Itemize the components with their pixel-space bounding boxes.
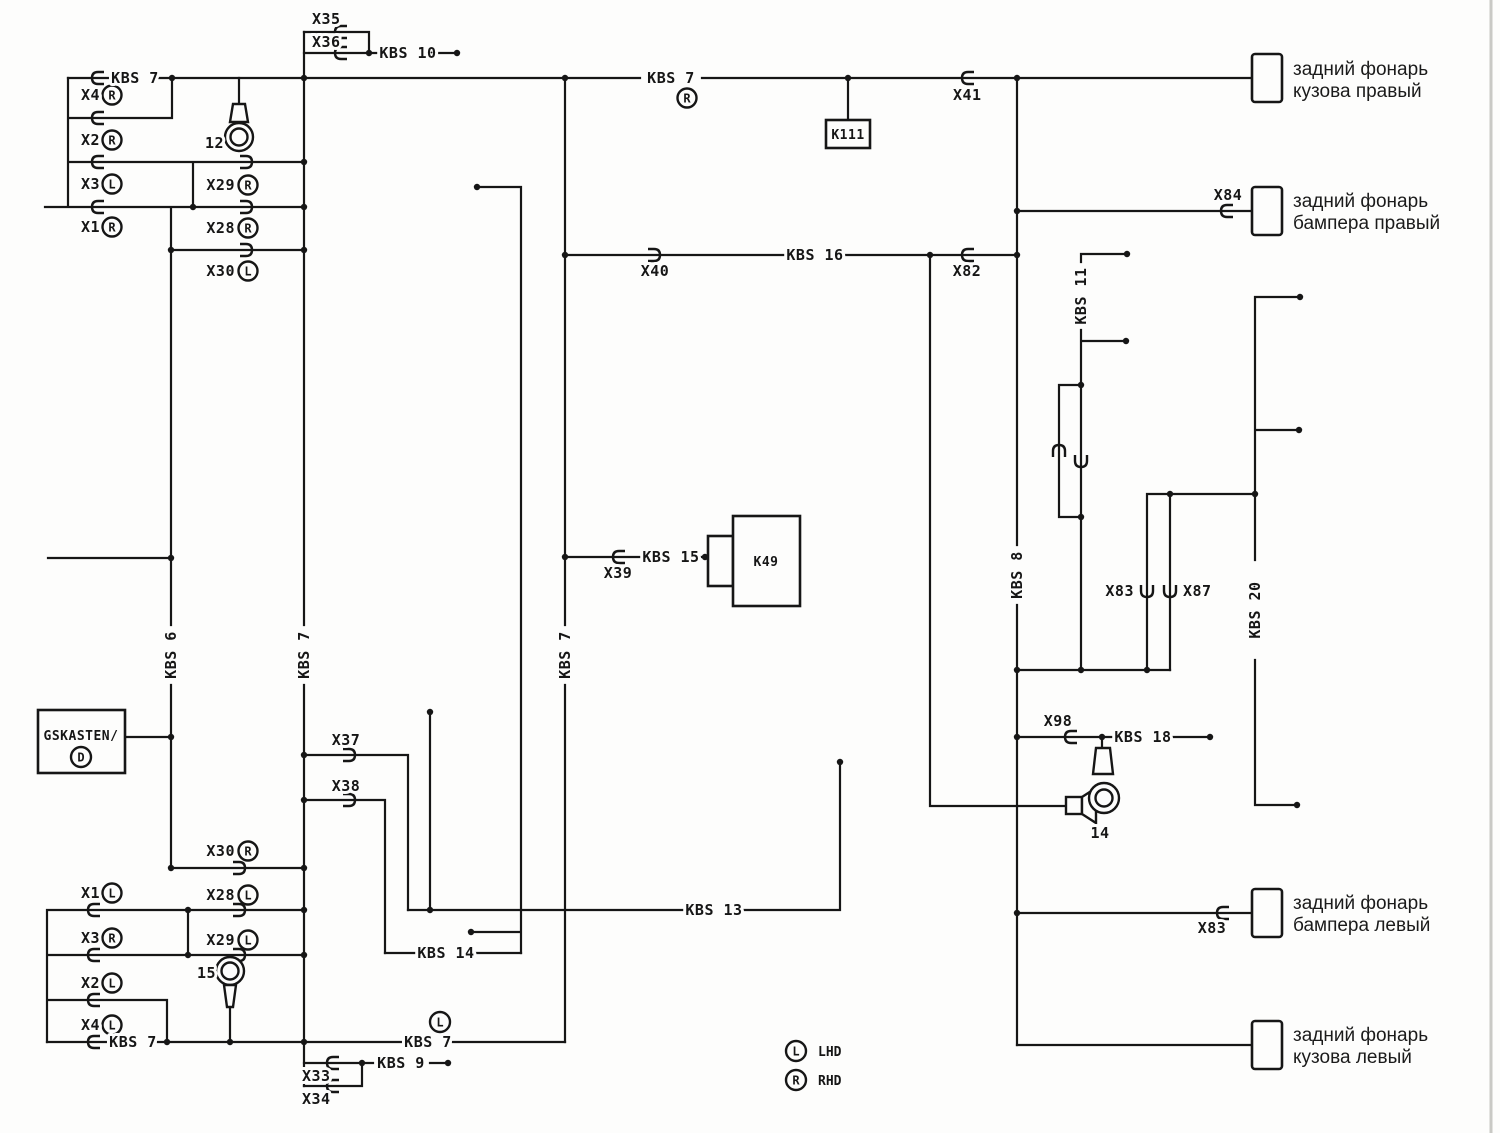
k111-label: K111: [831, 128, 864, 143]
x2-top-side-badge: R: [103, 131, 122, 150]
x30-top-label: X30: [206, 262, 235, 280]
x30-bottom-side-letter: R: [244, 845, 252, 859]
kbs7-label-top-left: KBS 7: [111, 69, 159, 87]
x34-label: X34: [302, 1090, 331, 1108]
gskasten-circuit-badge: D: [71, 747, 91, 767]
gskasten-label: GSKASTEN/: [44, 729, 119, 744]
lamp-captions: задний фонарь кузова правый задний фонар…: [1293, 59, 1440, 1068]
lamp-bumper-left-line2: бампера левый: [1293, 915, 1430, 936]
kbs7-column1-label: KBS 7: [295, 631, 313, 679]
x1-bottom-side-badge: L: [103, 884, 122, 903]
wiring-diagram-page: R R L R R R L R D R L L R L L L L KBS 7 …: [0, 0, 1500, 1133]
x1-top-side-badge: R: [103, 218, 122, 237]
kbs14-label: KBS 14: [417, 944, 474, 962]
lamp-box-bumper-left: [1252, 889, 1282, 937]
x30-top-side-letter: L: [244, 265, 251, 279]
kbs7-left-side-badge: L: [430, 1012, 450, 1032]
x28-bottom-side-badge: L: [239, 886, 258, 905]
x40-label: X40: [641, 262, 670, 280]
x1-top-label: X1: [81, 218, 100, 236]
kbs6-column-label: KBS 6: [162, 631, 180, 679]
x3-top-label: X3: [81, 175, 100, 193]
x2-bottom-side-badge: L: [103, 974, 122, 993]
x87-label: X87: [1183, 582, 1212, 600]
kbs11-column-label: KBS 11: [1072, 267, 1090, 324]
x30-bottom-side-badge: R: [239, 842, 258, 861]
x33-label: X33: [302, 1067, 331, 1085]
lamp-box-bumper-right: [1252, 187, 1282, 235]
legend: L LHD R RHD: [786, 1041, 842, 1090]
bulb-12-label: 12: [205, 134, 224, 152]
kbs13-label: KBS 13: [685, 901, 742, 919]
x2-bottom-label: X2: [81, 974, 100, 992]
lamp-box-body-left: [1252, 1021, 1282, 1069]
kbs7-column2-label: KBS 7: [556, 631, 574, 679]
kbs7-label-bottom-left: KBS 7: [109, 1033, 157, 1051]
x36-label: X36: [312, 33, 341, 51]
k49-label: K49: [754, 555, 779, 570]
kbs15-label: KBS 15: [642, 548, 699, 566]
x29-bottom-label: X29: [206, 931, 235, 949]
k49-side-box: [708, 536, 733, 586]
legend-r-letter: R: [792, 1074, 800, 1088]
x4-bottom-side-badge: L: [103, 1016, 122, 1035]
kbs7-label-top-right: KBS 7: [647, 69, 695, 87]
lamp-body-right-line1: задний фонарь: [1293, 59, 1428, 80]
kbs8-column-label: KBS 8: [1008, 551, 1026, 599]
x28-top-side-badge: R: [239, 219, 258, 238]
lamp-bumper-right-line2: бампера правый: [1293, 213, 1440, 234]
x29-top-side-letter: R: [244, 179, 252, 193]
legend-lhd-badge: L: [786, 1041, 806, 1061]
x41-label: X41: [953, 86, 982, 104]
x28-bottom-label: X28: [206, 886, 235, 904]
x30-bottom-label: X30: [206, 842, 235, 860]
x28-top-label: X28: [206, 219, 235, 237]
letter-badges: R R L R R R L R D R L L R L L L L: [71, 86, 697, 1035]
ring-14-label: 14: [1090, 824, 1109, 842]
bulb-12-icon: [225, 104, 253, 151]
x82-label: X82: [953, 262, 982, 280]
x2-top-label: X2: [81, 131, 100, 149]
x35-label: X35: [312, 10, 341, 28]
x39-label: X39: [604, 564, 633, 582]
x4-top-label: X4: [81, 86, 100, 104]
bulb-15-label: 15: [197, 964, 216, 982]
lamp-box-body-right: [1252, 54, 1282, 102]
x4-top-side-letter: R: [108, 89, 116, 103]
x28-top-side-letter: R: [244, 222, 252, 236]
x29-top-side-badge: R: [239, 176, 258, 195]
kbs18-label: KBS 18: [1114, 728, 1171, 746]
wiring-diagram-canvas: R R L R R R L R D R L L R L L L L KBS 7 …: [0, 0, 1500, 1133]
lamp-body-right-line2: кузова правый: [1293, 81, 1422, 102]
x4-bottom-side-letter: L: [108, 1019, 115, 1033]
x1-bottom-side-letter: L: [108, 887, 115, 901]
ring-terminal-14-icon: [1066, 748, 1119, 823]
bulb-15-icon: [216, 957, 244, 1007]
kbs20-column-label: KBS 20: [1246, 581, 1264, 638]
x1-bottom-label: X1: [81, 884, 100, 902]
kbs7-label-bottom-mid: KBS 7: [404, 1033, 452, 1051]
kbs10-label: KBS 10: [379, 44, 436, 62]
kbs7-left-side-letter: L: [436, 1016, 443, 1030]
lamp-body-left-line1: задний фонарь: [1293, 1025, 1428, 1046]
kbs7-right-side-letter: R: [683, 92, 691, 106]
legend-rhd-badge: R: [786, 1070, 806, 1090]
x83-inline-label: X83: [1105, 582, 1134, 600]
x83-lamp-label: X83: [1198, 919, 1227, 937]
x3-top-side-letter: L: [108, 178, 115, 192]
x29-bottom-side-letter: L: [244, 934, 251, 948]
x2-top-side-letter: R: [108, 134, 116, 148]
x1-top-side-letter: R: [108, 221, 116, 235]
x28-bottom-side-letter: L: [244, 889, 251, 903]
x37-label: X37: [332, 731, 361, 749]
x38-label: X38: [332, 777, 361, 795]
lamp-bumper-right-line1: задний фонарь: [1293, 191, 1428, 212]
kbs7-right-side-badge: R: [678, 89, 697, 108]
x3-bottom-side-letter: R: [108, 932, 116, 946]
x3-top-side-badge: L: [103, 175, 122, 194]
kbs9-label: KBS 9: [377, 1054, 425, 1072]
x29-bottom-side-badge: L: [239, 931, 258, 950]
x29-top-label: X29: [206, 176, 235, 194]
x2-bottom-side-letter: L: [108, 977, 115, 991]
legend-lhd-label: LHD: [818, 1045, 842, 1060]
lamp-body-left-line2: кузова левый: [1293, 1047, 1412, 1068]
x4-bottom-label: X4: [81, 1016, 100, 1034]
x3-bottom-label: X3: [81, 929, 100, 947]
x3-bottom-side-badge: R: [103, 929, 122, 948]
gskasten-circuit-letter: D: [77, 751, 84, 765]
x98-label: X98: [1044, 712, 1073, 730]
legend-l-letter: L: [792, 1045, 799, 1059]
lamp-bumper-left-line1: задний фонарь: [1293, 893, 1428, 914]
x4-top-side-badge: R: [103, 86, 122, 105]
x84-label: X84: [1214, 186, 1243, 204]
x30-top-side-badge: L: [239, 262, 258, 281]
legend-rhd-label: RHD: [818, 1074, 842, 1089]
kbs16-label: KBS 16: [786, 246, 843, 264]
